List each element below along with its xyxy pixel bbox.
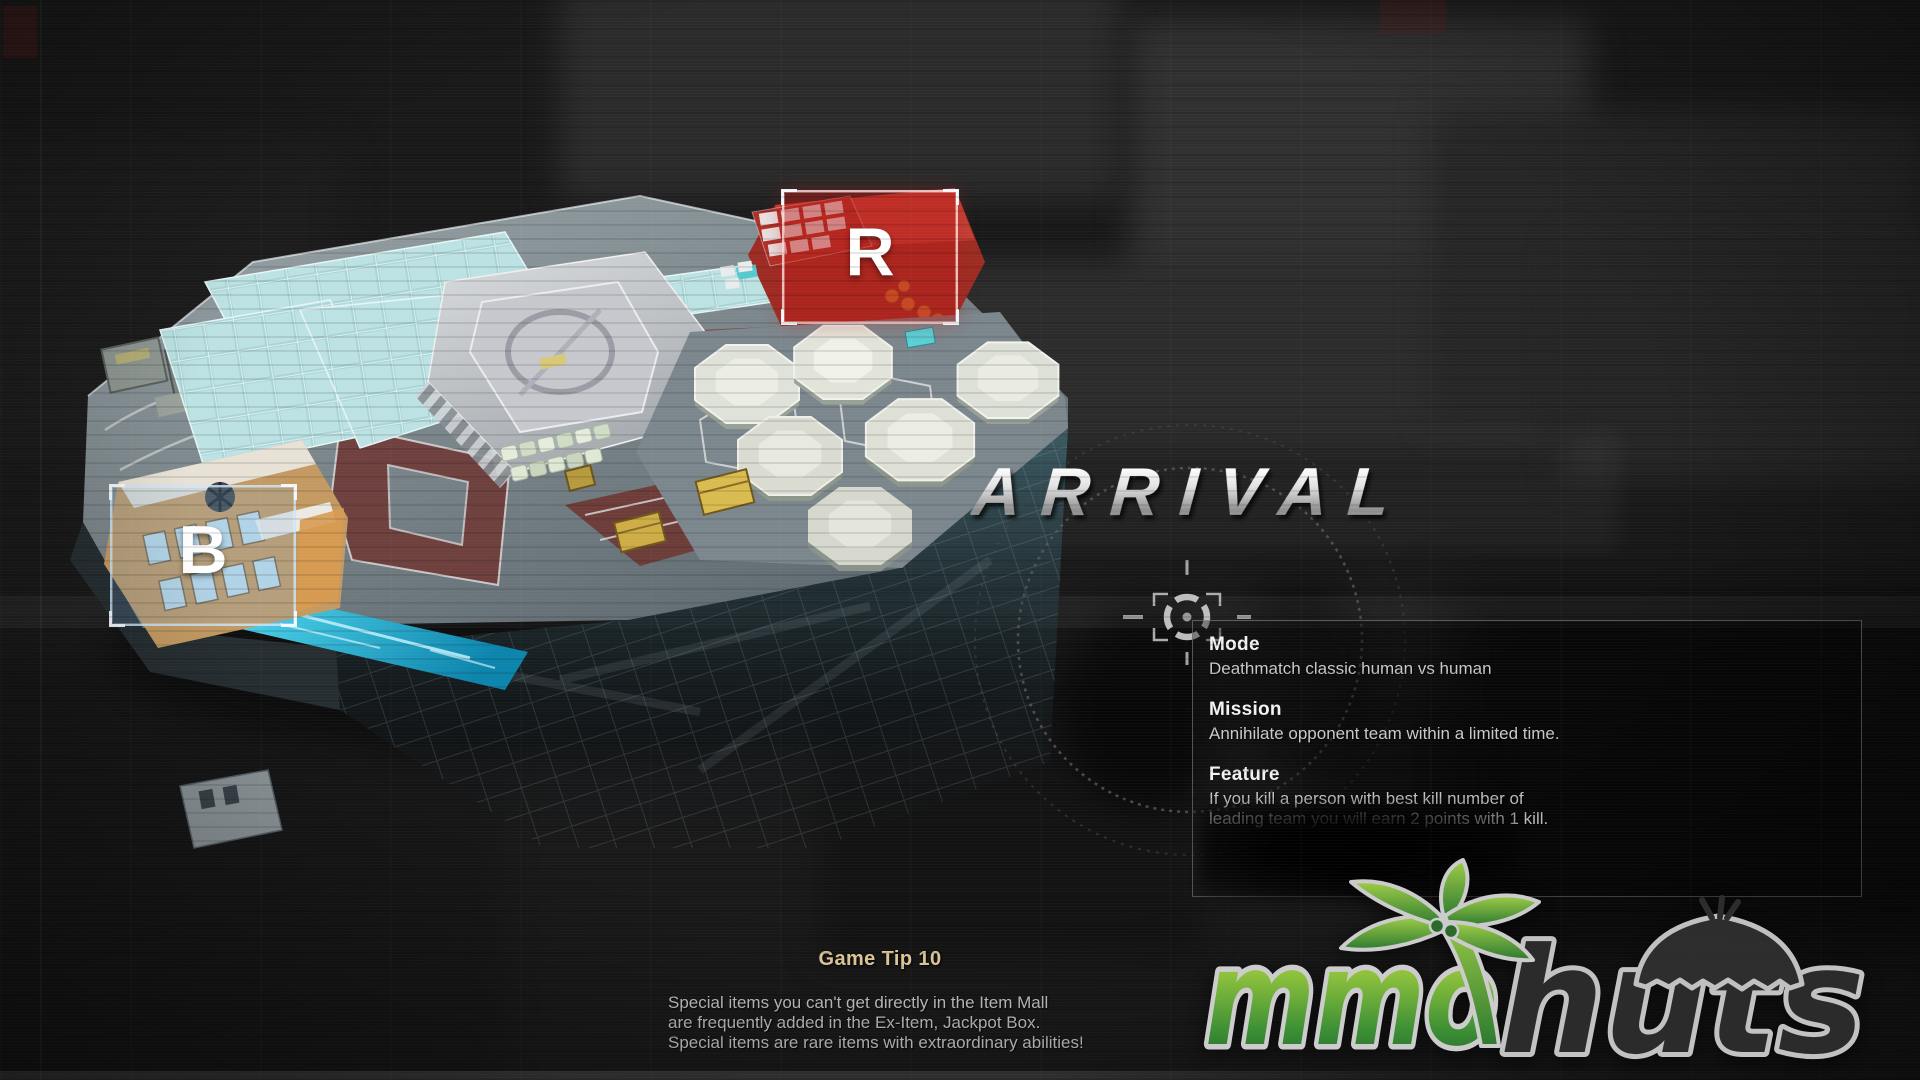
mode-text: Deathmatch classic human vs human	[1209, 659, 1841, 679]
marker-corner	[281, 611, 297, 627]
bg-red-artifact	[3, 6, 37, 58]
mode-section: Mode Deathmatch classic human vs human	[1209, 634, 1841, 679]
hut-roof-icon	[1636, 898, 1802, 989]
marker-corner	[943, 189, 959, 205]
mode-label: Mode	[1209, 634, 1841, 656]
spawn-marker-red-label: R	[845, 213, 894, 291]
spawn-marker-blue: B	[110, 485, 296, 626]
mission-label: Mission	[1209, 699, 1841, 721]
mmohuts-logo: mmo huts	[1185, 846, 1920, 1080]
marker-corner	[943, 309, 959, 325]
mission-section: Mission Annihilate opponent team within …	[1209, 699, 1841, 744]
spawn-marker-blue-label: B	[178, 511, 227, 589]
game-tip-line: Special items are rare items with extrao…	[650, 1033, 1110, 1053]
marker-corner	[109, 484, 125, 500]
map-title: ARRIVAL	[970, 458, 1412, 526]
game-tip-line: are frequently added in the Ex-Item, Jac…	[650, 1013, 1110, 1033]
bg-red-artifact	[1380, 0, 1446, 34]
spawn-marker-red: R	[782, 190, 958, 324]
feature-label: Feature	[1209, 764, 1841, 786]
game-tip-title: Game Tip 10	[650, 948, 1110, 971]
loading-screen: R B ARRIVAL Mode Deathmatch classic huma…	[0, 0, 1920, 1080]
marker-corner	[281, 484, 297, 500]
bg-grid-line	[40, 0, 42, 1080]
game-tip-line: Special items you can't get directly in …	[650, 993, 1110, 1013]
game-tip: Game Tip 10 Special items you can't get …	[650, 948, 1110, 1053]
marker-corner	[109, 611, 125, 627]
marker-corner	[781, 189, 797, 205]
mission-text: Annihilate opponent team within a limite…	[1209, 724, 1841, 744]
marker-corner	[781, 309, 797, 325]
